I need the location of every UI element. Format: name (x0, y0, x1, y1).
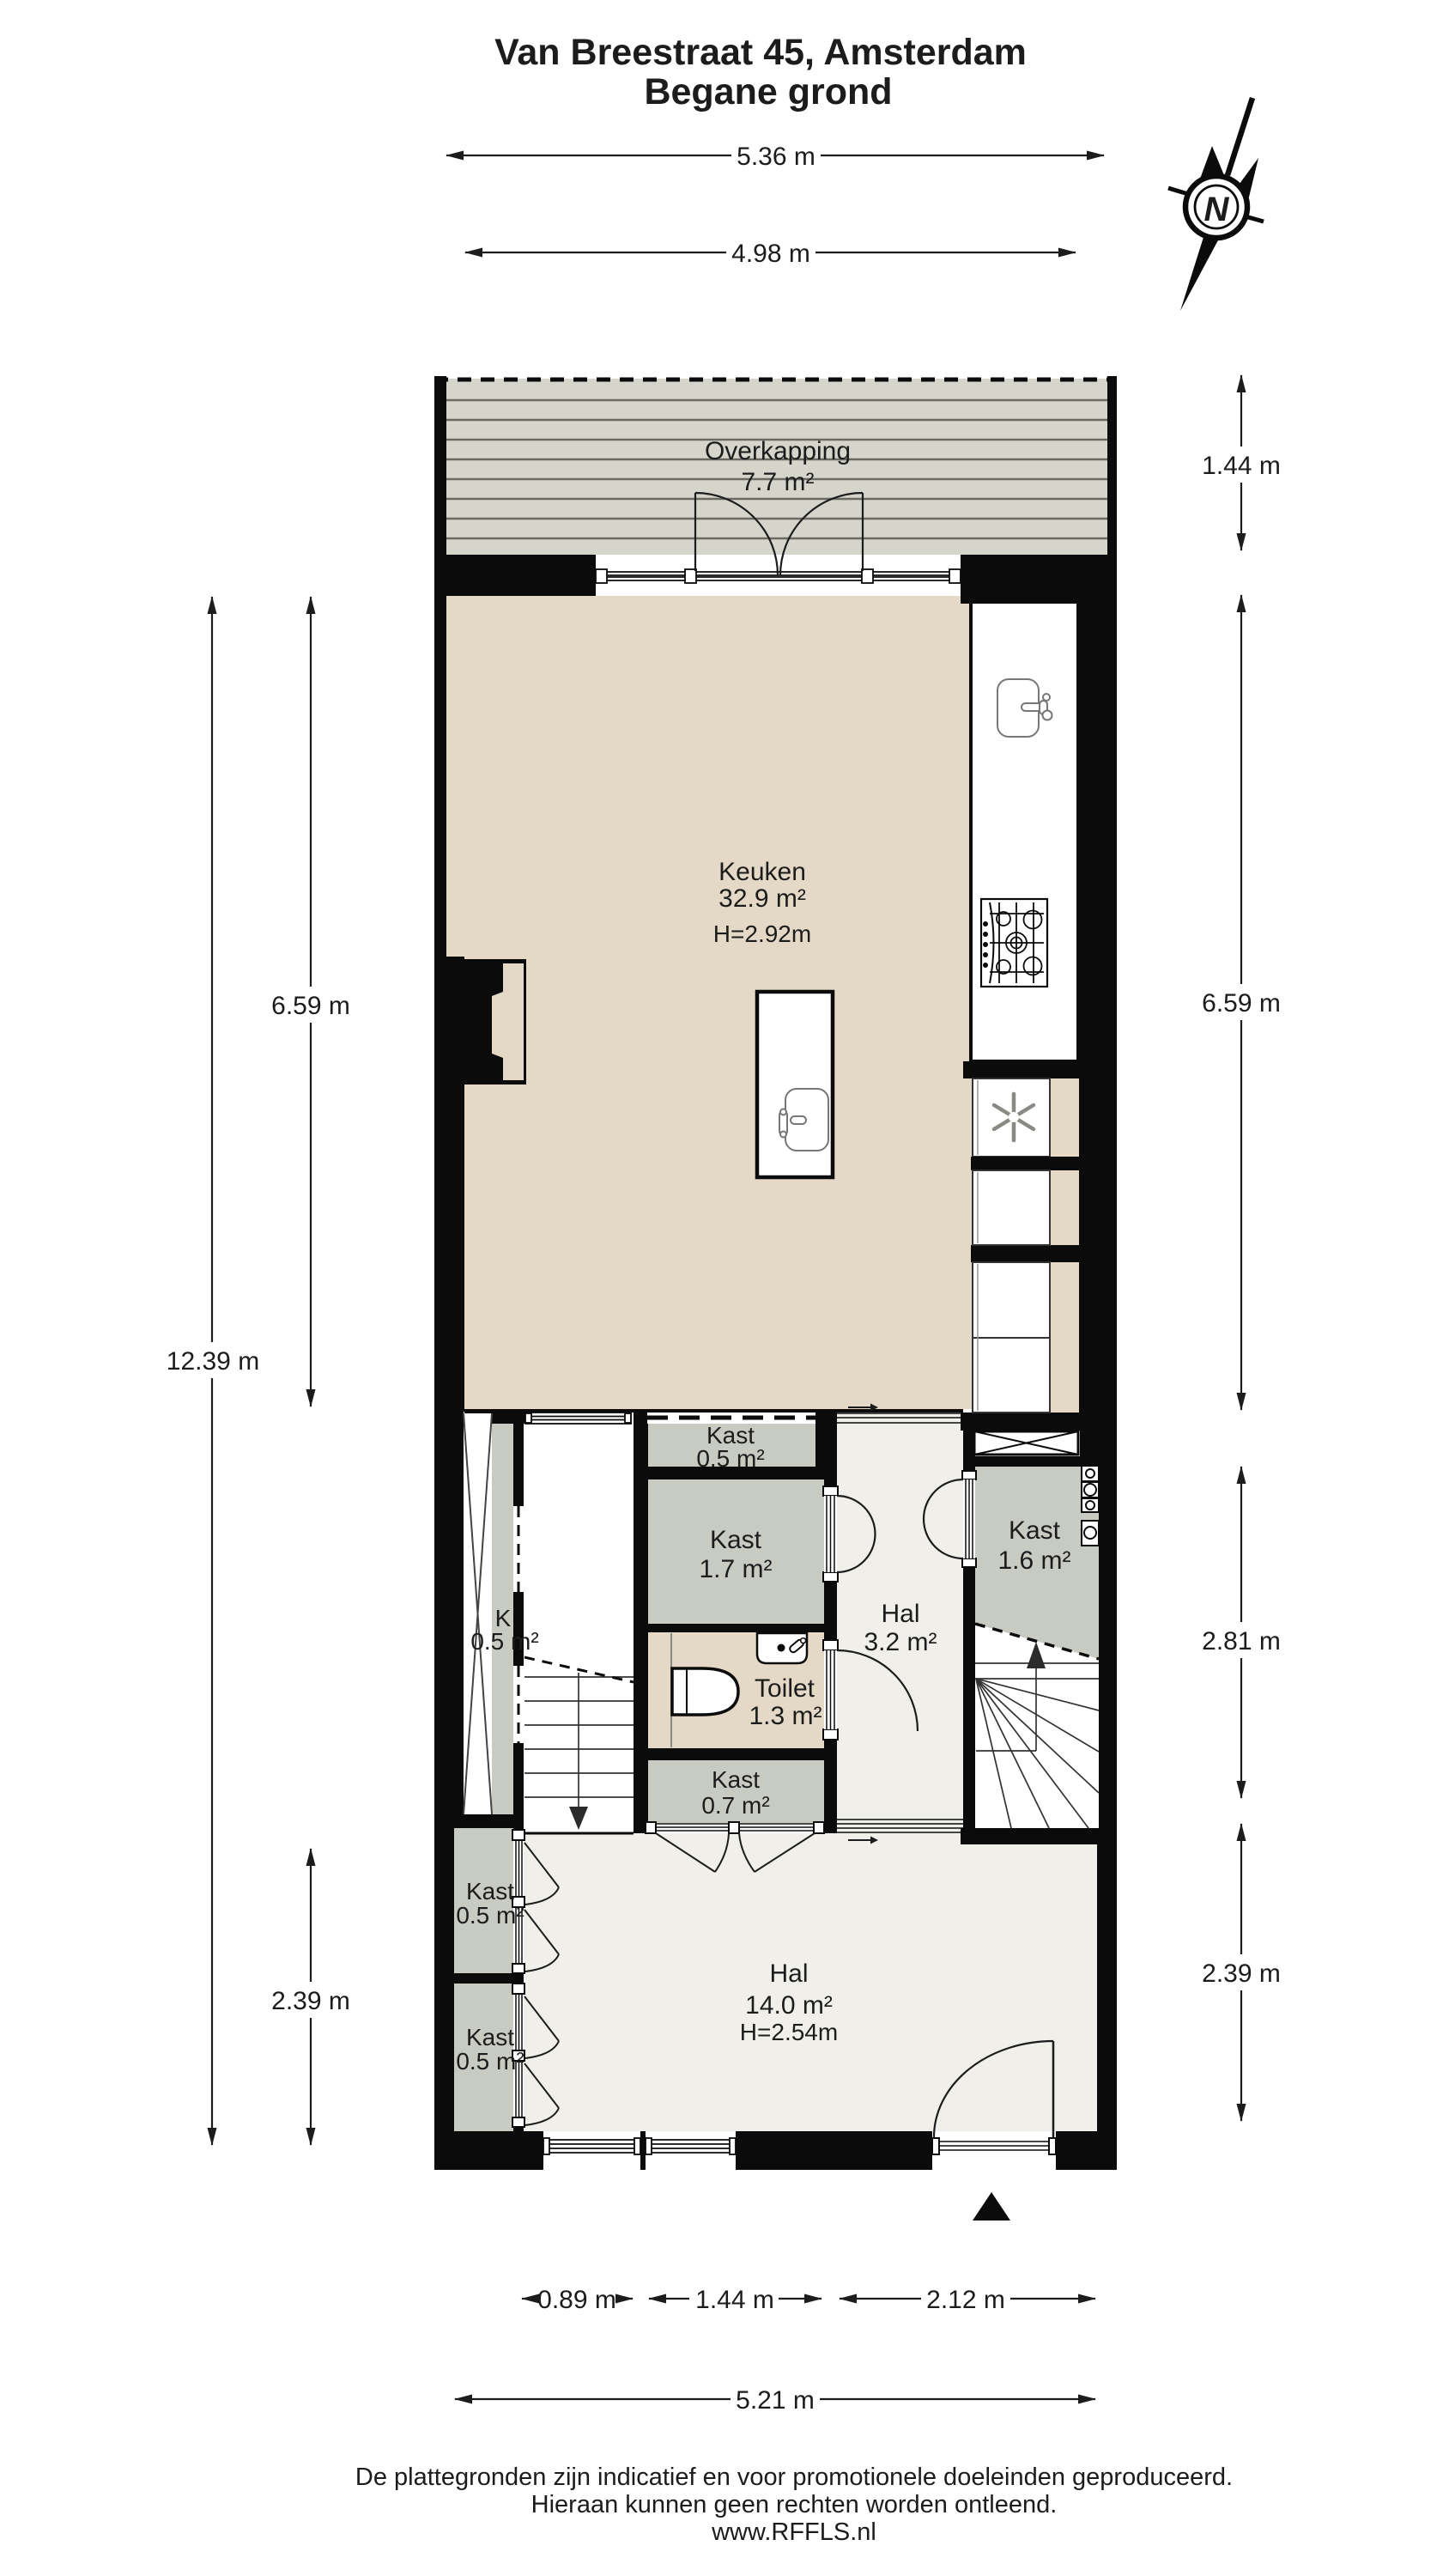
svg-text:5.36 m: 5.36 m (737, 143, 815, 171)
svg-text:Kast: Kast (466, 1878, 514, 1905)
svg-text:2.39 m: 2.39 m (271, 1987, 350, 2015)
svg-text:5.21 m: 5.21 m (736, 2386, 815, 2415)
svg-text:3.2 m²: 3.2 m² (864, 1628, 937, 1656)
svg-text:Van Breestraat 45, Amsterdam: Van Breestraat 45, Amsterdam (494, 32, 1027, 73)
svg-text:Hal: Hal (881, 1600, 919, 1628)
svg-text:1.6 m²: 1.6 m² (997, 1546, 1070, 1575)
svg-text:2.12 m: 2.12 m (926, 2286, 1005, 2314)
svg-text:Toilet: Toilet (755, 1674, 815, 1703)
svg-text:2.39 m: 2.39 m (1202, 1959, 1281, 1988)
svg-text:De plattegronden zijn indicati: De plattegronden zijn indicatief en voor… (355, 2464, 1233, 2491)
svg-text:1.44 m: 1.44 m (695, 2286, 774, 2314)
svg-text:6.59 m: 6.59 m (271, 992, 350, 1020)
svg-text:N: N (1204, 191, 1230, 228)
svg-text:H=2.54m: H=2.54m (740, 2019, 838, 2045)
svg-text:Hal: Hal (769, 1959, 808, 1988)
svg-text:1.3 m²: 1.3 m² (749, 1702, 822, 1730)
svg-text:0.7 m²: 0.7 m² (701, 1792, 769, 1819)
svg-text:2.81 m: 2.81 m (1202, 1627, 1281, 1656)
svg-text:4.98 m: 4.98 m (731, 240, 810, 268)
svg-text:32.9 m²: 32.9 m² (718, 884, 806, 913)
svg-text:Kast: Kast (712, 1766, 760, 1793)
svg-text:7.7 m²: 7.7 m² (741, 468, 814, 496)
svg-text:0.5 m²: 0.5 m² (470, 1628, 538, 1655)
svg-text:Overkapping: Overkapping (705, 437, 851, 465)
svg-text:6.59 m: 6.59 m (1202, 989, 1281, 1018)
svg-text:1.7 m²: 1.7 m² (699, 1555, 772, 1583)
svg-text:0.5 m²: 0.5 m² (696, 1445, 764, 1472)
svg-text:Keuken: Keuken (718, 858, 806, 886)
svg-text:Begane grond: Begane grond (644, 71, 892, 112)
svg-text:1.44 m: 1.44 m (1202, 452, 1281, 480)
svg-text:14.0 m²: 14.0 m² (745, 1991, 833, 2020)
svg-text:Kast: Kast (710, 1526, 762, 1554)
svg-text:H=2.92m: H=2.92m (713, 920, 811, 947)
svg-text:Kast: Kast (466, 2024, 514, 2050)
svg-text:0.5 m²: 0.5 m² (456, 2048, 524, 2075)
svg-text:Kast: Kast (1009, 1516, 1061, 1545)
svg-text:www.RFFLS.nl: www.RFFLS.nl (711, 2518, 876, 2546)
svg-text:0.89 m: 0.89 m (537, 2286, 616, 2314)
svg-text:12.39 m: 12.39 m (167, 1347, 259, 1376)
svg-text:0.5 m²: 0.5 m² (456, 1902, 524, 1929)
svg-text:Hieraan kunnen geen rechten wo: Hieraan kunnen geen rechten worden ontle… (531, 2491, 1058, 2518)
